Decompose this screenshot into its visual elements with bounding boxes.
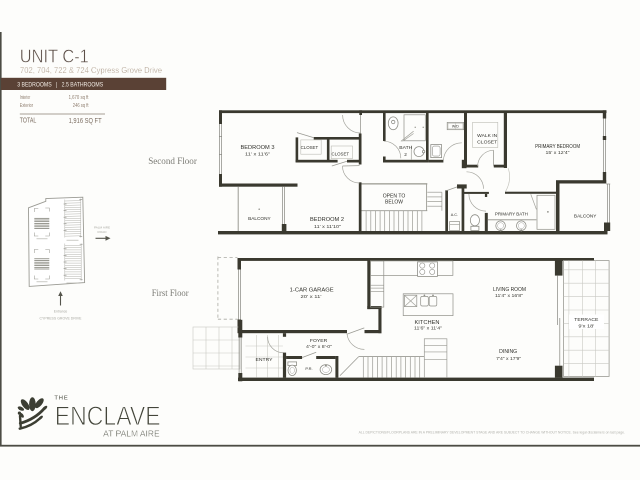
- svg-text:BALCONY: BALCONY: [248, 216, 271, 221]
- svg-text:20' x 11': 20' x 11': [301, 294, 322, 299]
- svg-text:ENTRY: ENTRY: [256, 357, 274, 362]
- svg-text:Interior: Interior: [20, 95, 30, 101]
- svg-text:Entrance: Entrance: [54, 309, 68, 313]
- svg-text:PALM AIRE: PALM AIRE: [94, 225, 110, 229]
- svg-text:BEDROOM 3: BEDROOM 3: [241, 145, 275, 151]
- svg-text:4'-0" x 8'-0": 4'-0" x 8'-0": [306, 344, 333, 349]
- svg-text:TOTAL: TOTAL: [20, 118, 37, 125]
- svg-text:TERRACE: TERRACE: [574, 317, 598, 322]
- svg-text:CLOSET: CLOSET: [477, 140, 497, 145]
- svg-text:CYPRESS GROVE DRIVE: CYPRESS GROVE DRIVE: [40, 315, 82, 320]
- svg-text:Exterior: Exterior: [20, 103, 33, 109]
- svg-text:246 sq ft: 246 sq ft: [73, 103, 89, 109]
- svg-text:15' x 12'4": 15' x 12'4": [546, 150, 571, 155]
- svg-text:OPEN TO: OPEN TO: [383, 193, 406, 199]
- svg-text:CLOSET: CLOSET: [332, 152, 350, 157]
- svg-text:FOYER: FOYER: [310, 338, 328, 343]
- svg-text:CLOSET: CLOSET: [301, 145, 319, 150]
- svg-text:BELOW: BELOW: [385, 200, 403, 206]
- svg-text:1-CAR GARAGE: 1-CAR GARAGE: [290, 287, 335, 293]
- svg-text:ALL DEPICTIONS/FLOORPLANS ARE: ALL DEPICTIONS/FLOORPLANS ARE IN A PRELI…: [359, 431, 625, 435]
- svg-text:WALK IN: WALK IN: [477, 133, 497, 138]
- svg-text:BALCONY: BALCONY: [574, 214, 597, 219]
- svg-text:11' x 11'6": 11' x 11'6": [245, 151, 271, 156]
- svg-text:9'x 18': 9'x 18': [578, 324, 594, 329]
- svg-text:BEDROOM 2: BEDROOM 2: [310, 217, 344, 223]
- svg-text:P.R.: P.R.: [305, 366, 312, 371]
- svg-text:ROAD: ROAD: [98, 230, 108, 234]
- svg-text:11' x 11'10": 11' x 11'10": [314, 224, 342, 229]
- svg-text:A.C.: A.C.: [451, 213, 458, 217]
- svg-text:2: 2: [404, 152, 407, 157]
- svg-text:First Floor: First Floor: [152, 288, 189, 298]
- svg-text:AT PALM AIRE: AT PALM AIRE: [103, 430, 160, 439]
- svg-text:DINING: DINING: [499, 349, 517, 355]
- svg-text:1,670 sq ft: 1,670 sq ft: [69, 95, 89, 101]
- svg-text:UNIT C-1: UNIT C-1: [20, 46, 89, 67]
- svg-text:3 BEDROOMS | 2.5 BATHROOMS: 3 BEDROOMS | 2.5 BATHROOMS: [17, 81, 103, 88]
- svg-text:BATH: BATH: [399, 145, 412, 150]
- svg-text:11'4" x 16'8": 11'4" x 16'8": [495, 293, 524, 298]
- svg-text:1,916 SQ FT: 1,916 SQ FT: [69, 118, 103, 125]
- svg-text:702, 704, 722 & 724 Cypress Gr: 702, 704, 722 & 724 Cypress Grove Drive: [20, 66, 162, 75]
- svg-text:11'6" x 11'4": 11'6" x 11'4": [414, 326, 443, 331]
- svg-text:7'4" x 17'9": 7'4" x 17'9": [496, 356, 522, 361]
- svg-text:PRIMARY BATH: PRIMARY BATH: [495, 212, 528, 217]
- svg-text:ENCLAVE: ENCLAVE: [55, 401, 161, 431]
- svg-text:Second Floor: Second Floor: [148, 156, 197, 166]
